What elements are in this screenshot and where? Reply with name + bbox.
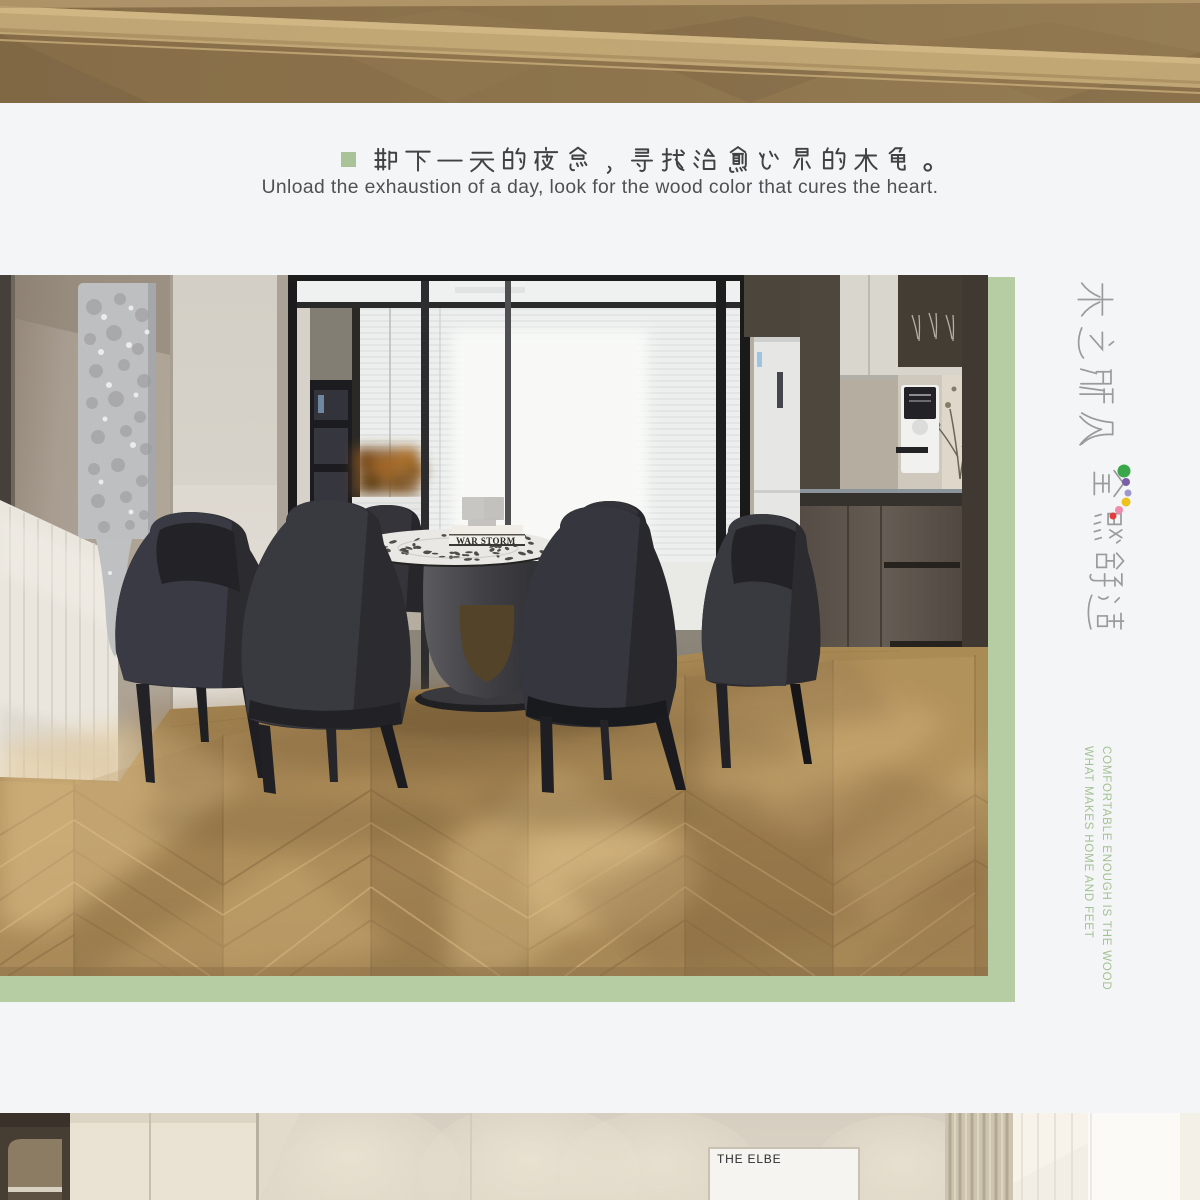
svg-text:THE ELBE: THE ELBE xyxy=(717,1152,781,1166)
svg-text:WAR STORM: WAR STORM xyxy=(456,536,516,546)
